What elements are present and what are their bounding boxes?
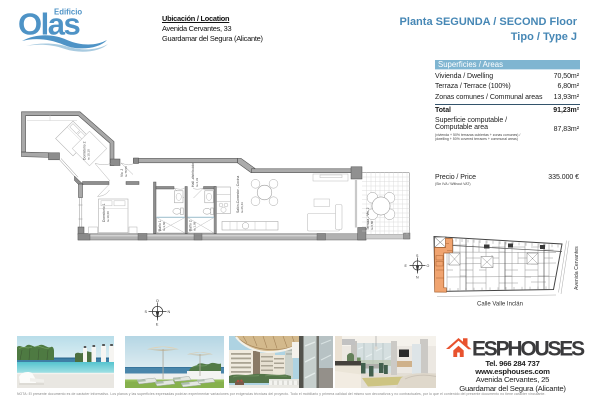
svg-text:ta 26,43: ta 26,43 — [240, 202, 244, 213]
svg-text:S: S — [416, 254, 419, 258]
svg-text:N: N — [168, 310, 171, 314]
svg-text:E: E — [405, 264, 408, 268]
svg-text:O: O — [156, 299, 159, 303]
svg-text:S: S — [145, 310, 148, 314]
svg-text:Avenida Cervantes: Avenida Cervantes — [574, 246, 580, 290]
svg-text:ta 4,33: ta 4,33 — [195, 177, 199, 187]
svg-text:O: O — [427, 264, 430, 268]
svg-text:N: N — [416, 276, 419, 280]
svg-text:ESPHOUSES: ESPHOUSES — [472, 338, 585, 359]
svg-text:ta 10,10: ta 10,10 — [87, 149, 91, 160]
svg-text:ta 1,68: ta 1,68 — [193, 221, 197, 231]
svg-text:ta 10,60: ta 10,60 — [106, 211, 110, 222]
svg-text:ta 3,60: ta 3,60 — [162, 221, 166, 231]
svg-text:ta 6,80: ta 6,80 — [370, 220, 374, 230]
svg-text:E: E — [156, 323, 159, 327]
svg-text:Calle Valle Inclán: Calle Valle Inclán — [477, 302, 523, 308]
svg-text:ta 78,58: ta 78,58 — [124, 166, 128, 177]
